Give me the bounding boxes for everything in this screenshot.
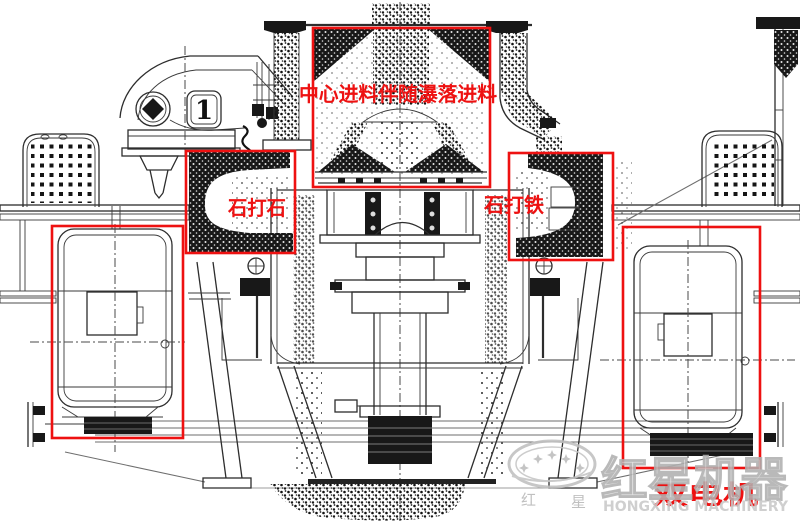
part-number-label: 1 (195, 96, 213, 126)
terminal-box (87, 292, 137, 335)
discharged-material-pile (270, 484, 465, 521)
right-motor-box (623, 227, 760, 468)
left-upper-beam (0, 205, 189, 211)
seal-char-right: 星 (571, 493, 586, 511)
left-outer-leg (197, 262, 226, 478)
feed-material-column (372, 3, 430, 26)
right-guard-panel (702, 131, 782, 207)
vent-holes (710, 140, 774, 200)
left-lower-beam (0, 291, 56, 296)
right-motor (600, 220, 795, 462)
grease-fitting (335, 400, 357, 412)
technical-drawing: 1 (0, 0, 800, 530)
left-guard-panel (23, 134, 99, 207)
sand-maker-structure-diagram: 1 (0, 0, 800, 530)
left-tension-rod (222, 258, 270, 360)
top-right-cap (756, 17, 800, 29)
motor-base-block (84, 417, 152, 434)
center-feed-label: 中心进料伴随瀑落进料 (299, 82, 497, 106)
stone-on-stone-label: 石打石 (227, 196, 286, 220)
falling-material-right (485, 195, 507, 363)
seal-char-left: 红 (521, 491, 536, 509)
vent-holes (31, 142, 92, 203)
right-tension-rod (530, 258, 578, 360)
ground-plate (308, 479, 496, 484)
stone-on-iron-label: 石打铁 (483, 193, 544, 217)
watermark-brand-en: HONGXING MACHINERY (603, 499, 789, 515)
